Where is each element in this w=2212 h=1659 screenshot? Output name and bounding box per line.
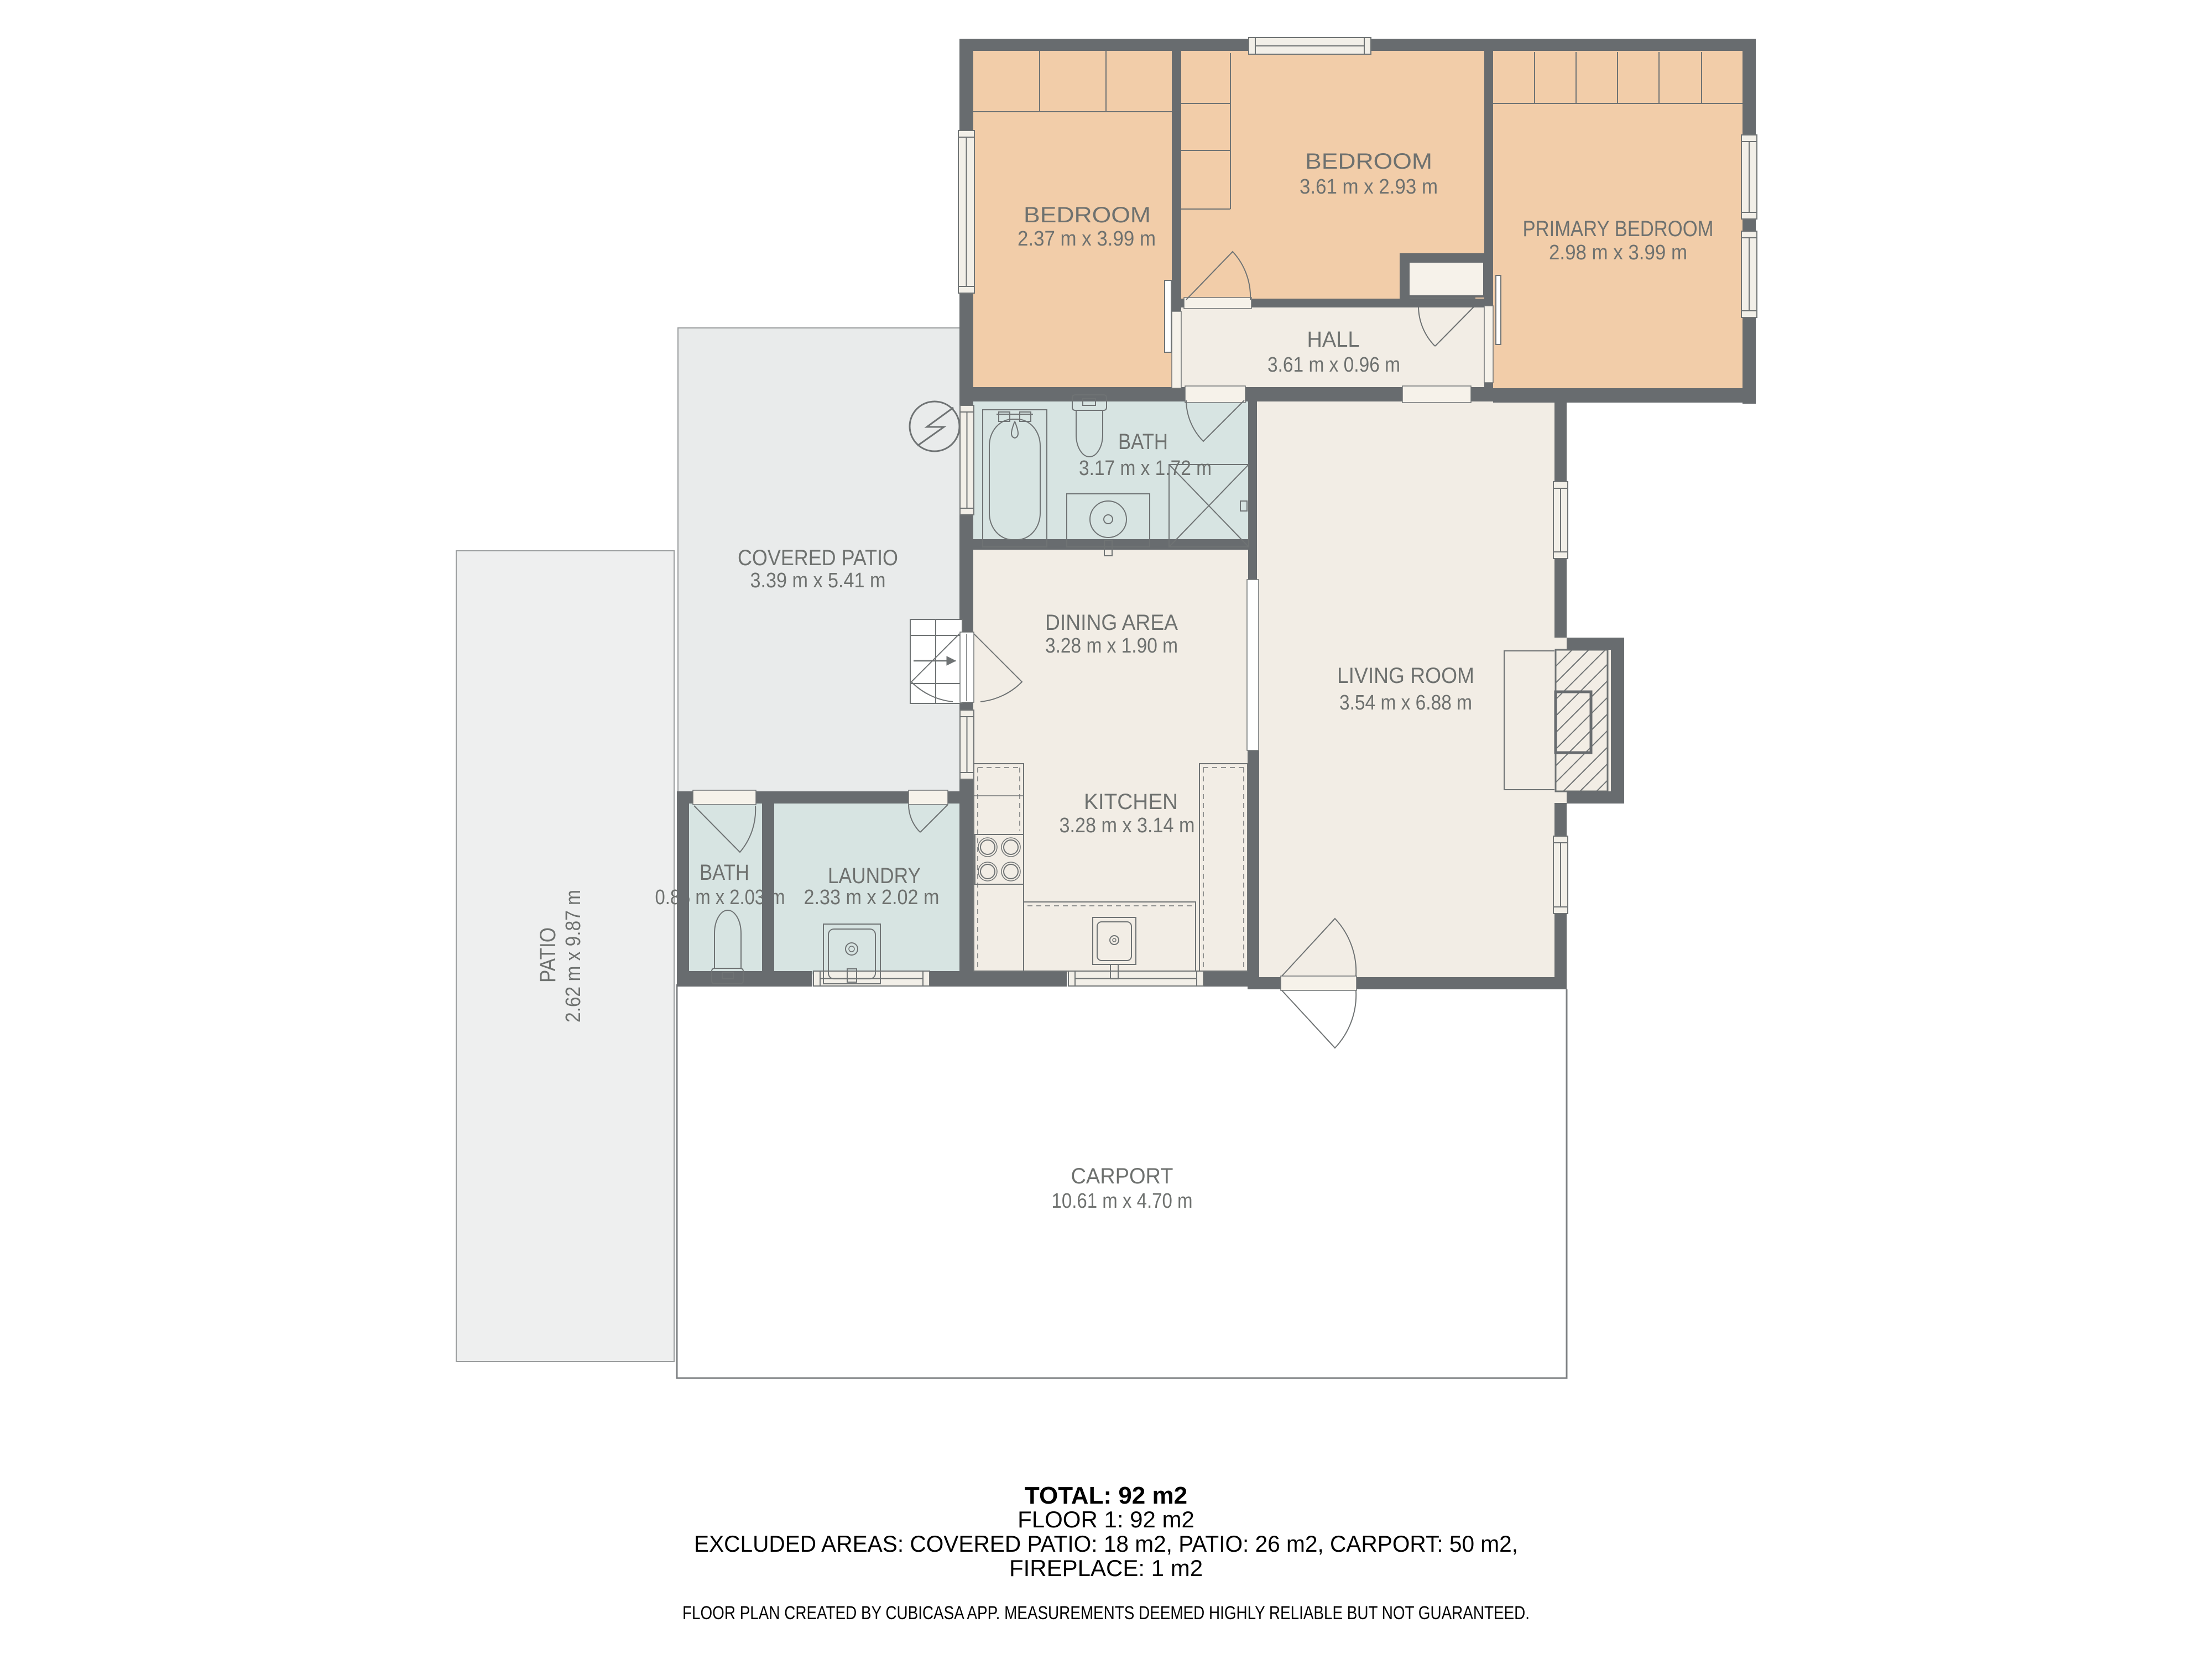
svg-text:PATIO: PATIO <box>536 927 560 983</box>
svg-text:3.61 m x 2.93 m: 3.61 m x 2.93 m <box>1300 175 1438 199</box>
svg-text:FIREPLACE: 1 m2: FIREPLACE: 1 m2 <box>1009 1555 1203 1581</box>
svg-text:3.17 m x 1.72 m: 3.17 m x 1.72 m <box>1079 457 1212 480</box>
svg-text:BATH: BATH <box>1118 430 1168 454</box>
svg-text:FLOOR 1: 92 m2: FLOOR 1: 92 m2 <box>1018 1506 1194 1532</box>
svg-text:EXCLUDED AREAS: COVERED PATIO:: EXCLUDED AREAS: COVERED PATIO: 18 m2, PA… <box>694 1531 1518 1557</box>
svg-text:2.37 m x 3.99 m: 2.37 m x 3.99 m <box>1018 227 1156 251</box>
svg-text:KITCHEN: KITCHEN <box>1084 790 1178 814</box>
svg-text:BATH: BATH <box>700 860 749 885</box>
svg-text:HALL: HALL <box>1307 327 1360 352</box>
svg-text:TOTAL: 92 m2: TOTAL: 92 m2 <box>1025 1482 1187 1509</box>
svg-text:BEDROOM: BEDROOM <box>1305 149 1432 174</box>
svg-text:BEDROOM: BEDROOM <box>1024 203 1151 227</box>
svg-text:FLOOR PLAN CREATED BY CUBICASA: FLOOR PLAN CREATED BY CUBICASA APP. MEAS… <box>682 1603 1530 1624</box>
svg-text:CARPORT: CARPORT <box>1071 1164 1173 1188</box>
svg-text:COVERED PATIO: COVERED PATIO <box>738 546 898 570</box>
svg-text:2.62 m x 9.87 m: 2.62 m x 9.87 m <box>562 890 585 1022</box>
svg-text:3.61 m x 0.96 m: 3.61 m x 0.96 m <box>1267 353 1400 377</box>
svg-text:2.33 m x 2.02 m: 2.33 m x 2.02 m <box>804 886 940 909</box>
svg-text:10.61 m x 4.70 m: 10.61 m x 4.70 m <box>1052 1190 1193 1213</box>
svg-text:LAUNDRY: LAUNDRY <box>828 864 921 888</box>
svg-text:LIVING ROOM: LIVING ROOM <box>1337 664 1474 688</box>
svg-text:DINING AREA: DINING AREA <box>1045 611 1178 635</box>
svg-text:3.54 m x 6.88 m: 3.54 m x 6.88 m <box>1339 691 1472 714</box>
svg-text:2.98 m x 3.99 m: 2.98 m x 3.99 m <box>1549 241 1687 264</box>
svg-text:3.28 m x 3.14 m: 3.28 m x 3.14 m <box>1060 814 1195 837</box>
svg-text:PRIMARY BEDROOM: PRIMARY BEDROOM <box>1523 217 1714 241</box>
svg-text:3.39 m x 5.41 m: 3.39 m x 5.41 m <box>750 569 886 592</box>
svg-text:3.28 m x 1.90 m: 3.28 m x 1.90 m <box>1045 634 1178 658</box>
